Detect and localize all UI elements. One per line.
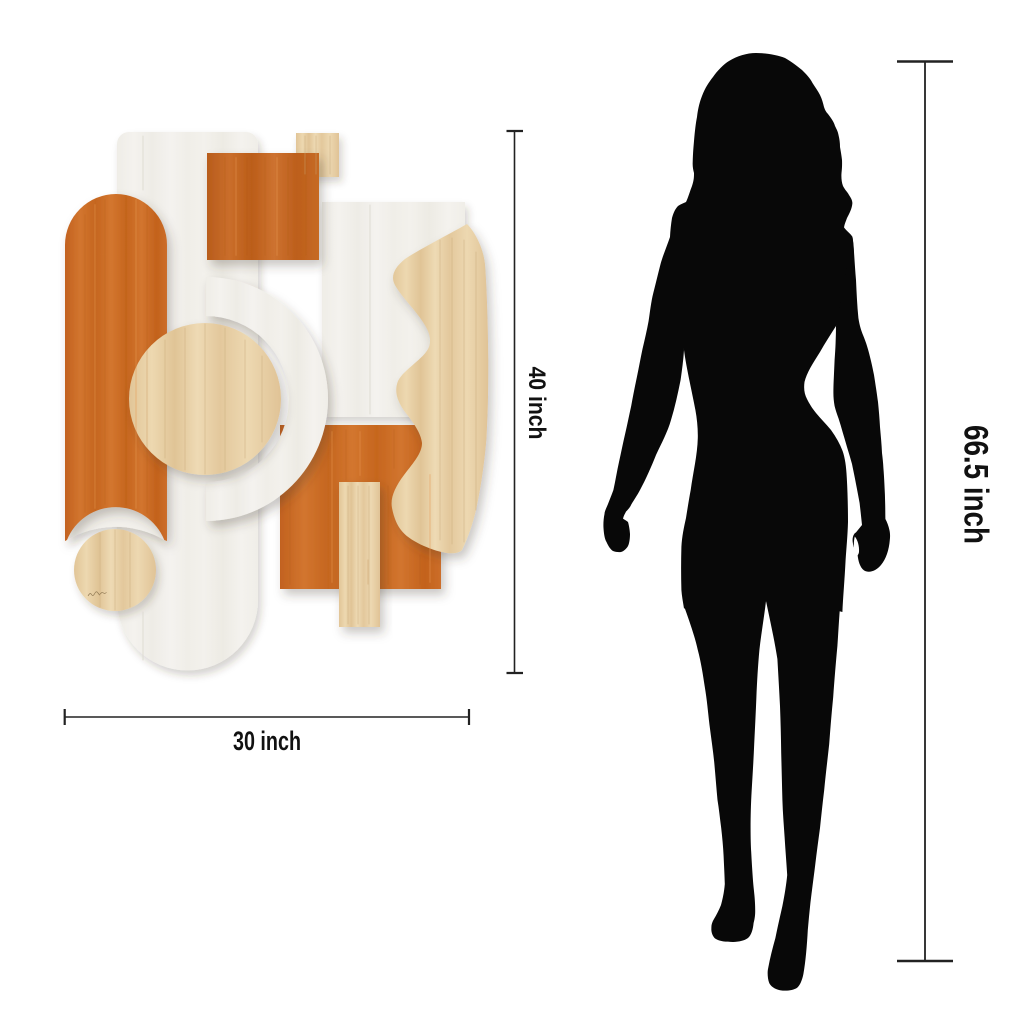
svg-text:66.5 inch: 66.5 inch — [957, 425, 995, 544]
svg-text:30 inch: 30 inch — [233, 726, 301, 756]
svg-text:40 inch: 40 inch — [523, 367, 550, 440]
